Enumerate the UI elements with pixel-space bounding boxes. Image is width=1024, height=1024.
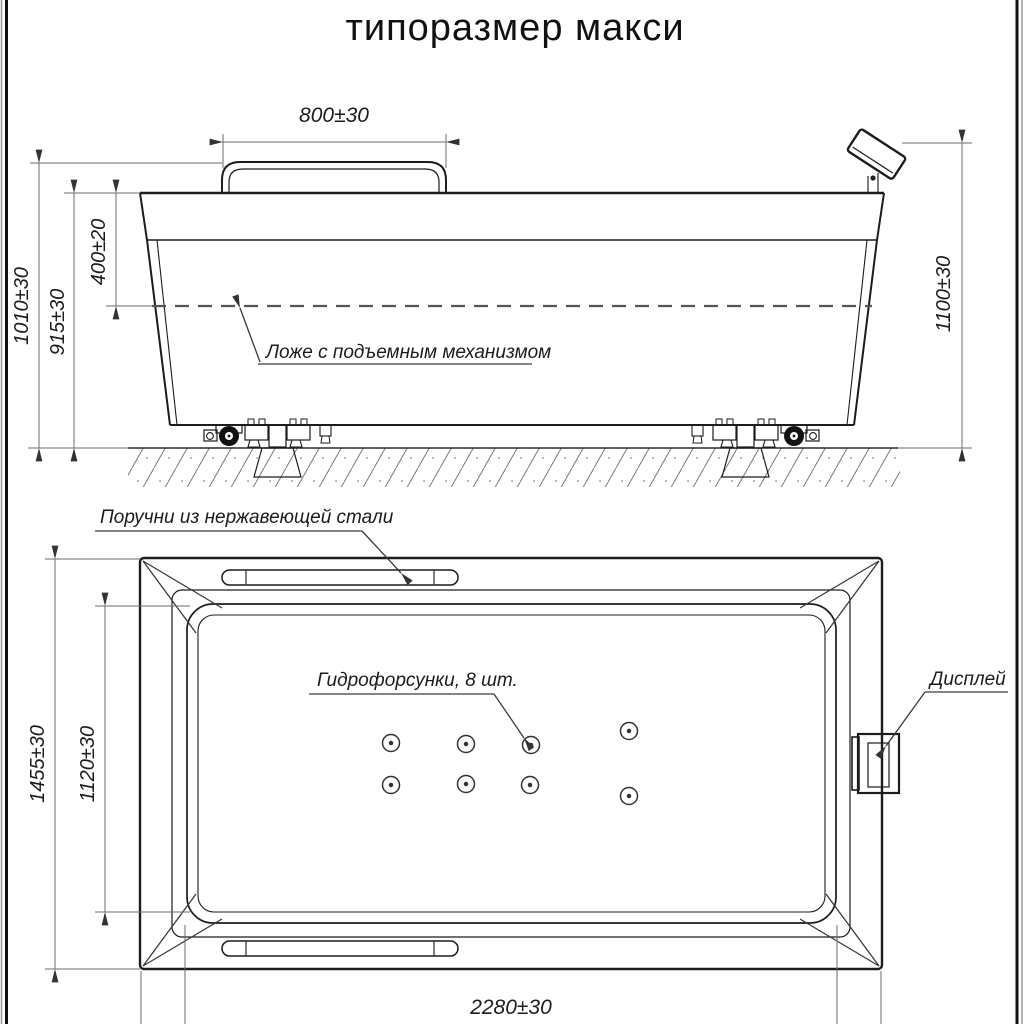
handrail-side [222,162,446,193]
drawing-title: типоразмер макси [345,7,684,49]
dim-display-height: 1100±30 [898,143,972,448]
display-top [852,734,899,793]
hydro-jets [383,723,638,805]
technical-drawing: типоразмер макси [0,0,1024,1024]
display-callout: Дисплей [886,669,1008,746]
svg-text:1120±30: 1120±30 [77,726,99,802]
jet-nozzle [621,723,638,740]
jets-label: Гидрофорсунки, 8 шт. [317,670,518,691]
jet-nozzle [383,777,400,794]
handrails-label: Поручни из нержавеющей стали [100,507,394,528]
jet-nozzle [523,737,540,754]
jet-nozzle [522,777,539,794]
handrail-top-upper [222,570,458,585]
dim-overall-length: 2280±30 [141,925,881,1024]
handrail-top-lower [222,941,458,956]
tub-body-side [140,193,884,425]
ground-hatch [128,448,900,487]
jet-nozzle [458,736,475,753]
jets-callout: Гидрофорсунки, 8 шт. [309,670,524,738]
top-view: Поручни из нержавеющей стали Гидрофорсун… [27,507,1008,1024]
display-side [847,129,906,193]
svg-text:1100±30: 1100±30 [933,256,955,332]
drawing-sheet: типоразмер макси [0,0,1024,1024]
bed-callout: Ложе с подъемным механизмом [240,308,551,364]
svg-text:800±30: 800±30 [299,104,369,127]
svg-text:400±20: 400±20 [88,219,110,286]
bed-label: Ложе с подъемным механизмом [264,342,551,363]
tub-outline-top [140,558,882,969]
svg-text:1455±30: 1455±30 [27,725,49,803]
svg-text:915±30: 915±30 [47,289,69,356]
dim-handrail-length: 800±30 [223,104,446,168]
jet-nozzle [383,735,400,752]
svg-text:1010±30: 1010±30 [11,267,33,345]
jet-nozzle [621,788,638,805]
svg-text:2280±30: 2280±30 [469,996,552,1019]
side-view: Ложе с подъемным механизмом 800±30 1010±… [11,104,972,487]
jet-nozzle [458,776,475,793]
dim-inner-width: 1120±30 [77,606,190,912]
display-label: Дисплей [928,669,1006,690]
